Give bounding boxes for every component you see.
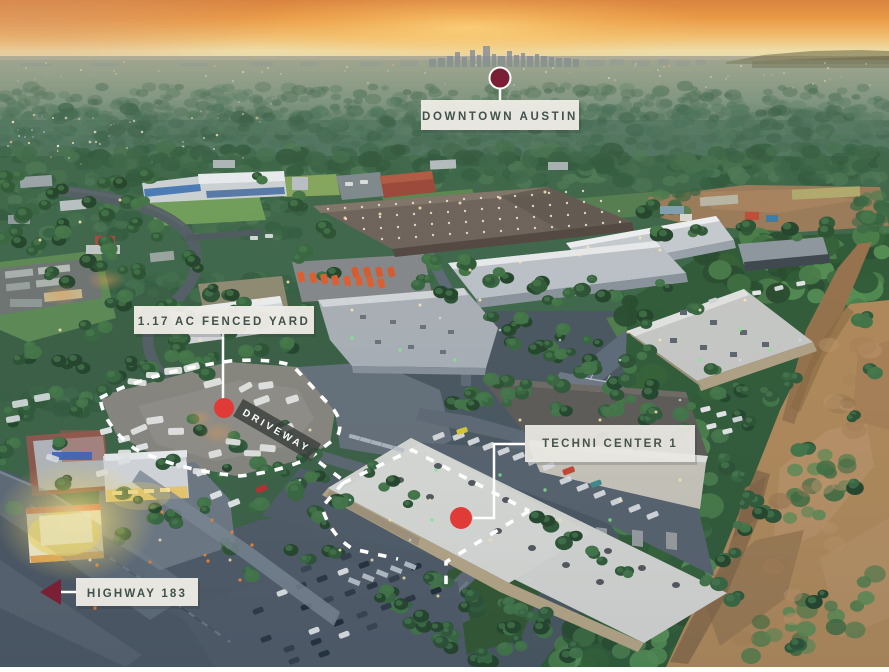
- svg-text:DOWNTOWN AUSTIN: DOWNTOWN AUSTIN: [422, 111, 578, 123]
- svg-text:1.17 AC FENCED YARD: 1.17 AC FENCED YARD: [138, 316, 310, 328]
- svg-text:TECHNI CENTER 1: TECHNI CENTER 1: [542, 438, 678, 450]
- svg-text:HIGHWAY 183: HIGHWAY 183: [87, 588, 187, 600]
